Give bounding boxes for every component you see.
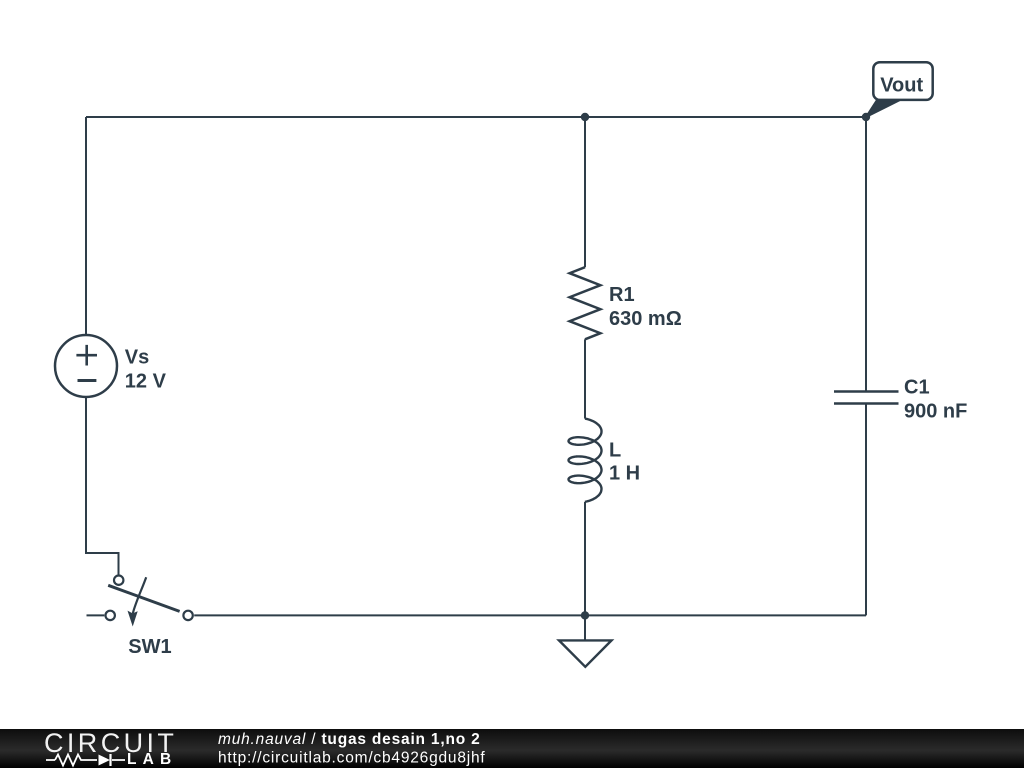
svg-text:630 mΩ: 630 mΩ bbox=[609, 308, 682, 330]
svg-text:L: L bbox=[609, 440, 621, 462]
svg-text:LAB: LAB bbox=[127, 751, 177, 768]
svg-text:12 V: 12 V bbox=[125, 371, 167, 393]
svg-text:http://circuitlab.com/cb4926gd: http://circuitlab.com/cb4926gdu8jhf bbox=[218, 750, 486, 767]
svg-text:muh.nauval / tugas desain 1,no: muh.nauval / tugas desain 1,no 2 bbox=[218, 731, 481, 748]
svg-text:Vout: Vout bbox=[880, 74, 923, 96]
svg-text:900 nF: 900 nF bbox=[904, 400, 967, 422]
svg-text:1 H: 1 H bbox=[609, 462, 640, 484]
svg-text:C1: C1 bbox=[904, 377, 930, 399]
svg-text:R1: R1 bbox=[609, 284, 635, 306]
svg-text:SW1: SW1 bbox=[128, 636, 171, 658]
svg-text:Vs: Vs bbox=[125, 347, 149, 369]
